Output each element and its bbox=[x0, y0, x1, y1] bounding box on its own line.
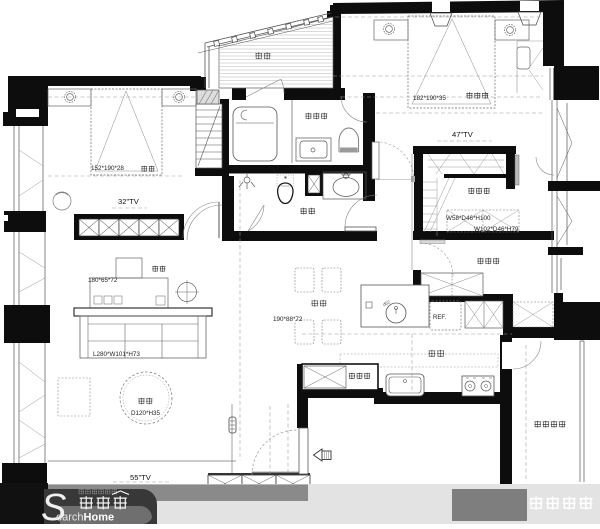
svg-text:D120*H35: D120*H35 bbox=[131, 410, 161, 417]
svg-text:190*88*72: 190*88*72 bbox=[273, 316, 303, 323]
svg-text:earchHome: earchHome bbox=[56, 512, 114, 524]
svg-text:L280*W101*H73: L280*W101*H73 bbox=[93, 351, 140, 358]
svg-text:55"TV: 55"TV bbox=[130, 473, 152, 482]
svg-text:W58*D46*H100: W58*D46*H100 bbox=[446, 215, 491, 222]
svg-text:152*190*28: 152*190*28 bbox=[91, 165, 124, 172]
svg-text:47"TV: 47"TV bbox=[452, 130, 474, 139]
svg-text:REF.: REF. bbox=[433, 315, 446, 321]
svg-text:W102*D46*H79: W102*D46*H79 bbox=[474, 226, 519, 233]
svg-text:182*190*35: 182*190*35 bbox=[413, 95, 446, 102]
svg-text:32"TV: 32"TV bbox=[118, 197, 140, 206]
svg-text:180*65*72: 180*65*72 bbox=[88, 277, 118, 284]
